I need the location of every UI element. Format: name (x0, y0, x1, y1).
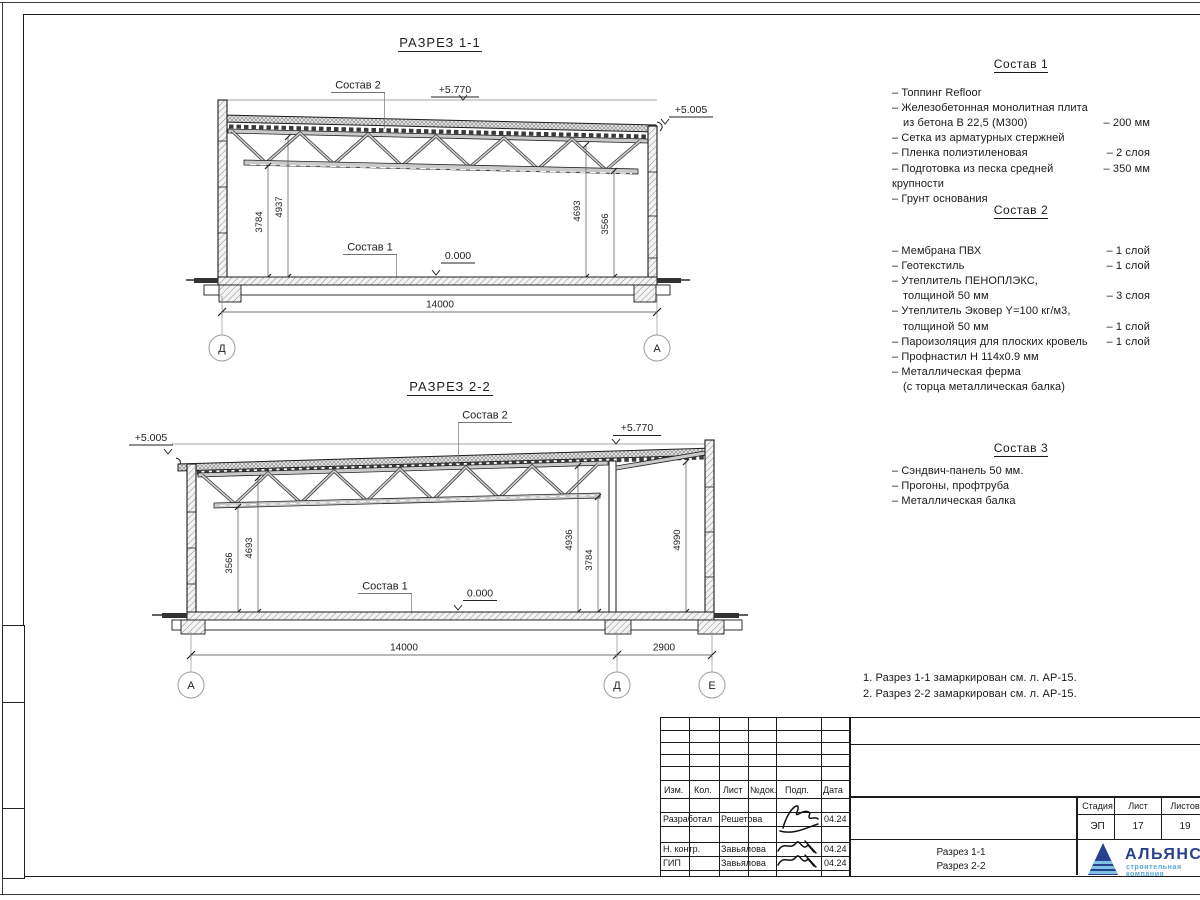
dim-3784-s1 (265, 163, 271, 280)
notes: 1. Разрез 1-1 замаркирован см. л. АР-15.… (863, 670, 1077, 702)
tb-row-name: Решетова (721, 814, 762, 824)
composition-title: Состав 1 (892, 57, 1150, 72)
dim-4693-s2 (255, 475, 261, 615)
dim-3784-s2 (595, 494, 601, 615)
composition-text: – Топпинг Refloor (892, 86, 982, 101)
tb-row-role: Н. контр. (663, 844, 700, 854)
dim-text: 14000 (426, 300, 454, 311)
wall-right-s1 (648, 126, 657, 284)
composition-line: – Металлическая балка (892, 494, 1150, 509)
composition-line: – Топпинг Refloor (892, 86, 1150, 101)
composition-item: – Мембрана ПВХ– 1 слой (892, 244, 1150, 259)
composition-line: толщиной 50 мм– 3 слоя (892, 289, 1150, 304)
title-block: Изм. Кол. Лист №док. Подп. Дата Разработ… (660, 717, 1200, 877)
axis-bubbles-s2: А Д Е (178, 655, 725, 698)
composition-value: – 200 мм (1097, 116, 1150, 131)
dim-text: 2900 (653, 643, 676, 654)
wall-left-s1 (218, 100, 227, 284)
composition-line: толщиной 50 мм– 1 слой (892, 320, 1150, 335)
dim-text: 4990 (672, 529, 683, 550)
composition-item: – Топпинг Refloor (892, 86, 1150, 101)
tb-row-date: 04.24 (824, 858, 847, 868)
axis-letter: Е (708, 680, 715, 692)
composition-title: Состав 2 (892, 203, 1150, 218)
dim-3566-s1 (611, 168, 617, 280)
section-2: РАЗРЕЗ 2-2 +5.770 +5.005 (129, 379, 748, 698)
composition-line: из бетона В 22,5 (М300)– 200 мм (892, 116, 1150, 131)
company-name: АЛЬЯНС (1125, 846, 1200, 864)
tb-stage-value: ЭП (1081, 821, 1114, 832)
tb-col-izm: Изм. (664, 785, 683, 795)
axis-letter: Д (613, 680, 621, 692)
truss-bottom-chord-s1 (244, 160, 638, 174)
dim-4990-s2 (683, 459, 689, 615)
dim-text: 4693 (572, 200, 583, 221)
axis-letter: А (653, 343, 661, 355)
composition-text: – Утеплитель Эковер Y=100 кг/м3, (892, 304, 1071, 319)
composition-item: – Сетка из арматурных стержней (892, 131, 1150, 146)
note-line: 2. Разрез 2-2 замаркирован см. л. АР-15. (863, 686, 1077, 702)
composition-list: – Топпинг Refloor– Железобетонная моноли… (892, 86, 1150, 207)
composition-text: – Утеплитель ПЕНОПЛЭКС, (892, 274, 1038, 289)
wall-left-s2 (187, 464, 196, 613)
elevation-mark-zero-s1: 0.000 (432, 250, 475, 275)
label-text: Состав 2 (335, 80, 381, 92)
composition-line: (с торца металлическая балка) (892, 380, 1150, 395)
dim-text: 3784 (584, 549, 595, 570)
column-axis-d-s2 (609, 461, 616, 612)
composition-value: – 2 слоя (1101, 146, 1150, 161)
elevation-value: +5.770 (621, 422, 654, 434)
composition-text: – Подготовка из песка средней крупности (892, 162, 1097, 192)
composition-list: – Сэндвич-панель 50 мм.– Прогоны, профтр… (892, 464, 1150, 509)
label-text: Состав 1 (362, 581, 408, 593)
composition-text: – Металлическая балка (892, 494, 1016, 509)
tb-row-name: Завьялова (721, 858, 766, 868)
section-1-title: РАЗРЕЗ 1-1 (399, 35, 481, 50)
dim-text: 3784 (254, 211, 265, 232)
composition-block-3: Состав 3 – Сэндвич-панель 50 мм.– Прогон… (892, 441, 1150, 509)
elevation-value: +5.005 (675, 104, 708, 116)
composition-line: – Мембрана ПВХ– 1 слой (892, 244, 1150, 259)
tb-col-kol: Кол. (694, 785, 712, 795)
dim-text: 4693 (244, 537, 255, 558)
label-text: Состав 2 (462, 410, 508, 422)
composition-text: из бетона В 22,5 (М300) (903, 116, 1027, 131)
tb-row-role: ГИП (663, 858, 681, 868)
composition-item: – Прогоны, профтруба (892, 479, 1150, 494)
foundation-pad (634, 285, 656, 302)
composition-list: – Мембрана ПВХ– 1 слой– Геотекстиль– 1 с… (892, 244, 1150, 395)
axis-letter: Д (218, 343, 226, 355)
composition-item: – Утеплитель Эковер Y=100 кг/м3,толщиной… (892, 304, 1150, 334)
composition-line: – Прогоны, профтруба (892, 479, 1150, 494)
tb-row-role: Разработал (663, 814, 712, 824)
composition-line: – Пароизоляция для плоских кровель– 1 сл… (892, 335, 1150, 350)
composition-text: – Пароизоляция для плоских кровель (892, 335, 1088, 350)
drawing-sheet: { "section1": { "title": "РАЗРЕЗ 1-1", "… (0, 0, 1200, 900)
signature-gip (775, 852, 821, 870)
composition-text: толщиной 50 мм (903, 289, 989, 304)
elevation-value: +5.770 (439, 84, 472, 96)
composition-text: – Железобетонная монолитная плита (892, 101, 1088, 116)
wall-right-s2 (705, 440, 714, 613)
composition-item: – Подготовка из песка средней крупности–… (892, 162, 1150, 192)
dim-text: 3566 (600, 213, 611, 234)
dim-4693-s1 (583, 142, 589, 280)
tb-col-ndok: №док. (750, 785, 776, 795)
composition-item: – Железобетонная монолитная плитаиз бето… (892, 101, 1150, 131)
composition-text: – Сетка из арматурных стержней (892, 131, 1065, 146)
composition-line: – Сетка из арматурных стержней (892, 131, 1150, 146)
tb-col-podp: Подп. (785, 785, 809, 795)
ground-strip-right (714, 613, 739, 618)
dim-span-s1: 14000 (218, 296, 661, 318)
composition-text: – Пленка полиэтиленовая (892, 146, 1028, 161)
composition-text: – Прогоны, профтруба (892, 479, 1009, 494)
dim-text: 3566 (224, 552, 235, 573)
composition-item: – Геотекстиль– 1 слой (892, 259, 1150, 274)
composition-line: – Пленка полиэтиленовая– 2 слоя (892, 146, 1150, 161)
composition-text: толщиной 50 мм (903, 320, 989, 335)
elevation-mark-5005-s2: +5.005 (129, 432, 180, 466)
tb-doc-line1: Разрез 1-1 (901, 846, 1021, 860)
elevation-mark-5005-s1: +5.005 (657, 104, 713, 131)
section-1: РАЗРЕЗ 1-1 +5.770 (186, 35, 713, 361)
composition-item: – Утеплитель ПЕНОПЛЭКС,толщиной 50 мм– 3… (892, 274, 1150, 304)
truss-bottom-chord-s2 (214, 493, 600, 508)
foundation-pad (181, 620, 205, 634)
tb-sheets-value: 19 (1164, 821, 1200, 832)
floor-slab-s1 (186, 277, 690, 302)
composition-line: – Утеплитель ПЕНОПЛЭКС, (892, 274, 1150, 289)
composition-text: – Сэндвич-панель 50 мм. (892, 464, 1024, 479)
composition-item: – Профнастил Н 114х0.9 мм (892, 350, 1150, 365)
dim-text: 4937 (274, 196, 285, 217)
tb-col-list: Лист (723, 785, 743, 795)
tb-doc-title: Разрез 1-1 Разрез 2-2 (901, 846, 1021, 874)
composition-line: – Металлическая ферма (892, 365, 1150, 380)
composition-text: – Профнастил Н 114х0.9 мм (892, 350, 1039, 365)
composition-text: (с торца металлическая балка) (903, 380, 1065, 395)
composition-value: – 3 слоя (1101, 289, 1150, 304)
dim-span-s2: 14000 2900 (187, 632, 716, 661)
composition-block-1: Состав 1 – Топпинг Refloor– Железобетонн… (892, 57, 1150, 207)
company-logo-icon (1087, 842, 1121, 876)
ground-strip-left (162, 613, 187, 618)
elevation-mark-zero-s2: 0.000 (454, 588, 497, 611)
foundation-pad (698, 620, 724, 634)
composition-block-2: Состав 2 – Мембрана ПВХ– 1 слой– Геотекс… (892, 203, 1150, 395)
label-text: Состав 1 (347, 242, 393, 254)
ground-strip-right (657, 278, 681, 283)
note-line: 1. Разрез 1-1 замаркирован см. л. АР-15. (863, 670, 1077, 686)
dim-text: 14000 (390, 643, 418, 654)
composition-item: – Металлическая балка (892, 494, 1150, 509)
composition-line: – Профнастил Н 114х0.9 мм (892, 350, 1150, 365)
elevation-value: 0.000 (445, 250, 471, 262)
tb-sheet-value: 17 (1116, 821, 1160, 832)
composition-value: – 1 слой (1101, 244, 1150, 259)
tb-stage-label: Стадия (1081, 801, 1114, 811)
foundation-pad (605, 620, 631, 634)
axis-bubbles-s1: Д А (209, 312, 670, 361)
composition-line: – Железобетонная монолитная плита (892, 101, 1150, 116)
signature-razrabotal (775, 798, 821, 838)
composition-title: Состав 3 (892, 441, 1150, 456)
floor-slab-s2 (152, 612, 748, 634)
elevation-value: +5.005 (135, 432, 168, 444)
composition-item: – Металлическая ферма(с торца металличес… (892, 365, 1150, 395)
dim-text: 4936 (564, 529, 575, 550)
composition-text: – Металлическая ферма (892, 365, 1021, 380)
composition-value: – 1 слой (1101, 320, 1150, 335)
roof-slab-s1 (222, 115, 656, 132)
composition-value: – 1 слой (1101, 335, 1150, 350)
composition-line: – Геотекстиль– 1 слой (892, 259, 1150, 274)
elevation-mark-5770-s1: +5.770 (431, 84, 479, 100)
tb-sheets-label: Листов (1164, 801, 1200, 811)
section-2-title: РАЗРЕЗ 2-2 (409, 379, 491, 394)
composition-item: – Сэндвич-панель 50 мм. (892, 464, 1150, 479)
tb-row-date: 04.24 (824, 814, 847, 824)
composition-item: – Пароизоляция для плоских кровель– 1 сл… (892, 335, 1150, 350)
elevation-mark-5770-s2: +5.770 (612, 422, 661, 444)
composition-value: – 350 мм (1097, 162, 1150, 192)
ground-strip-left (194, 278, 218, 283)
axis-letter: А (187, 680, 195, 692)
tb-col-data: Дата (823, 785, 843, 795)
composition-text: – Мембрана ПВХ (892, 244, 981, 259)
composition-value: – 1 слой (1101, 259, 1150, 274)
tb-row-name: Завьялова (721, 844, 766, 854)
tb-sheet-label: Лист (1116, 801, 1160, 811)
tb-doc-line2: Разрез 2-2 (901, 860, 1021, 874)
dim-3566-s2 (235, 504, 241, 615)
composition-text: – Геотекстиль (892, 259, 965, 274)
composition-item: – Пленка полиэтиленовая– 2 слоя (892, 146, 1150, 161)
dim-4937-s1 (285, 134, 291, 280)
elevation-value: 0.000 (467, 588, 493, 600)
tb-row-date: 04.24 (824, 844, 847, 854)
composition-line: – Подготовка из песка средней крупности–… (892, 162, 1150, 192)
company-subtitle: строительная компания (1126, 864, 1200, 878)
composition-line: – Утеплитель Эковер Y=100 кг/м3, (892, 304, 1150, 319)
composition-line: – Сэндвич-панель 50 мм. (892, 464, 1150, 479)
